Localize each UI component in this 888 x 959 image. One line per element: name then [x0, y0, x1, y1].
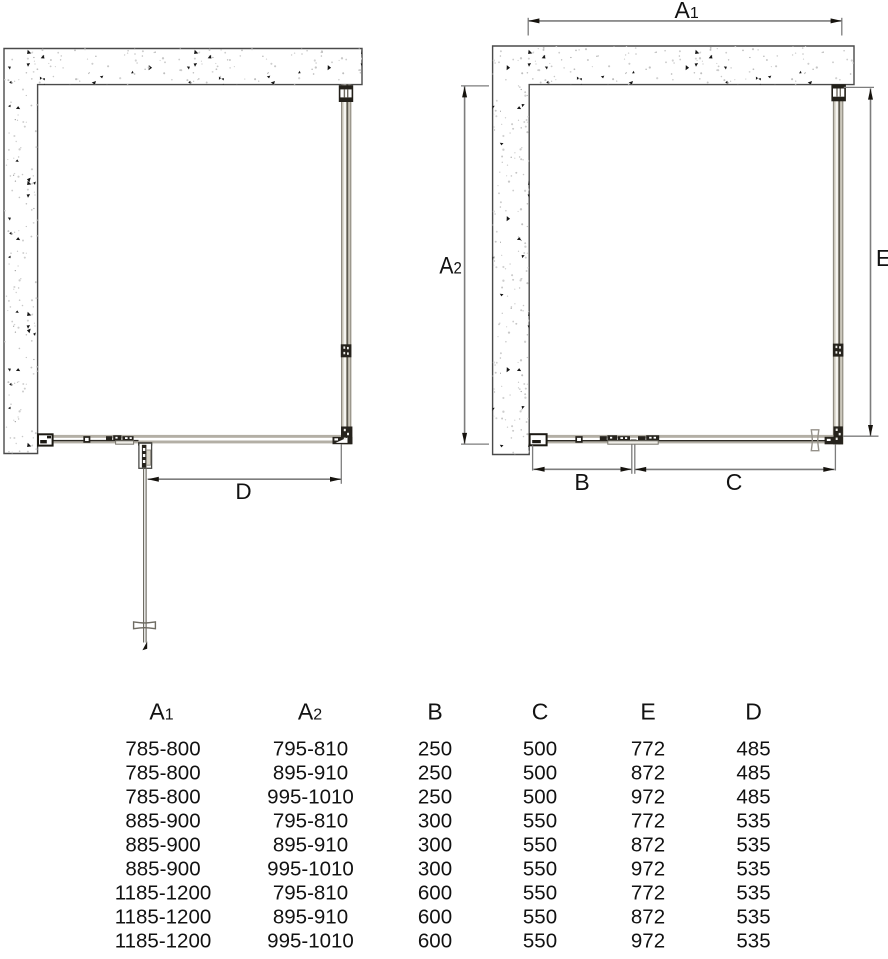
svg-text:535: 535 [736, 858, 770, 881]
svg-text:995-1010: 995-1010 [267, 786, 354, 809]
svg-text:535: 535 [736, 834, 770, 857]
svg-text:300: 300 [418, 810, 452, 833]
svg-text:995-1010: 995-1010 [267, 930, 354, 953]
svg-text:550: 550 [523, 834, 557, 857]
svg-text:1185-1200: 1185-1200 [115, 882, 212, 905]
svg-text:535: 535 [736, 906, 770, 929]
svg-text:250: 250 [418, 786, 452, 809]
svg-text:885-900: 885-900 [125, 858, 200, 881]
svg-text:485: 485 [736, 786, 770, 809]
svg-text:C: C [532, 699, 549, 725]
svg-text:550: 550 [523, 930, 557, 953]
svg-text:C: C [726, 469, 743, 495]
svg-text:600: 600 [418, 882, 452, 905]
svg-text:550: 550 [523, 906, 557, 929]
svg-text:300: 300 [418, 834, 452, 857]
svg-text:535: 535 [736, 882, 770, 905]
svg-text:550: 550 [523, 882, 557, 905]
svg-text:772: 772 [631, 738, 665, 761]
svg-text:500: 500 [523, 762, 557, 785]
svg-text:785-800: 785-800 [125, 762, 200, 785]
svg-text:485: 485 [736, 762, 770, 785]
svg-text:A2: A2 [298, 699, 322, 725]
svg-text:485: 485 [736, 738, 770, 761]
svg-text:872: 872 [631, 834, 665, 857]
svg-text:1185-1200: 1185-1200 [115, 906, 212, 929]
svg-text:895-910: 895-910 [273, 762, 348, 785]
svg-text:E: E [876, 245, 888, 271]
svg-text:D: D [235, 479, 251, 504]
svg-text:1185-1200: 1185-1200 [115, 930, 212, 953]
svg-text:B: B [574, 469, 589, 495]
svg-text:300: 300 [418, 858, 452, 881]
svg-text:785-800: 785-800 [125, 738, 200, 761]
svg-text:B: B [427, 699, 442, 725]
svg-text:600: 600 [418, 930, 452, 953]
svg-text:535: 535 [736, 930, 770, 953]
svg-text:250: 250 [418, 762, 452, 785]
svg-text:885-900: 885-900 [125, 834, 200, 857]
svg-text:972: 972 [631, 858, 665, 881]
svg-text:872: 872 [631, 762, 665, 785]
svg-text:500: 500 [523, 738, 557, 761]
svg-text:772: 772 [631, 810, 665, 833]
svg-text:D: D [745, 699, 762, 725]
svg-text:500: 500 [523, 786, 557, 809]
svg-text:E: E [640, 699, 655, 725]
svg-text:995-1010: 995-1010 [267, 858, 354, 881]
svg-text:A1: A1 [149, 699, 173, 725]
svg-text:785-800: 785-800 [125, 786, 200, 809]
svg-text:A2: A2 [439, 252, 461, 279]
svg-text:A1: A1 [675, 0, 699, 23]
svg-text:872: 872 [631, 906, 665, 929]
svg-text:772: 772 [631, 882, 665, 905]
svg-text:535: 535 [736, 810, 770, 833]
svg-text:795-810: 795-810 [273, 810, 348, 833]
svg-text:972: 972 [631, 930, 665, 953]
svg-text:550: 550 [523, 858, 557, 881]
svg-text:795-810: 795-810 [273, 738, 348, 761]
svg-text:895-910: 895-910 [273, 906, 348, 929]
svg-text:250: 250 [418, 738, 452, 761]
svg-text:972: 972 [631, 786, 665, 809]
svg-text:600: 600 [418, 906, 452, 929]
svg-text:795-810: 795-810 [273, 882, 348, 905]
svg-text:895-910: 895-910 [273, 834, 348, 857]
svg-text:885-900: 885-900 [125, 810, 200, 833]
svg-text:550: 550 [523, 810, 557, 833]
